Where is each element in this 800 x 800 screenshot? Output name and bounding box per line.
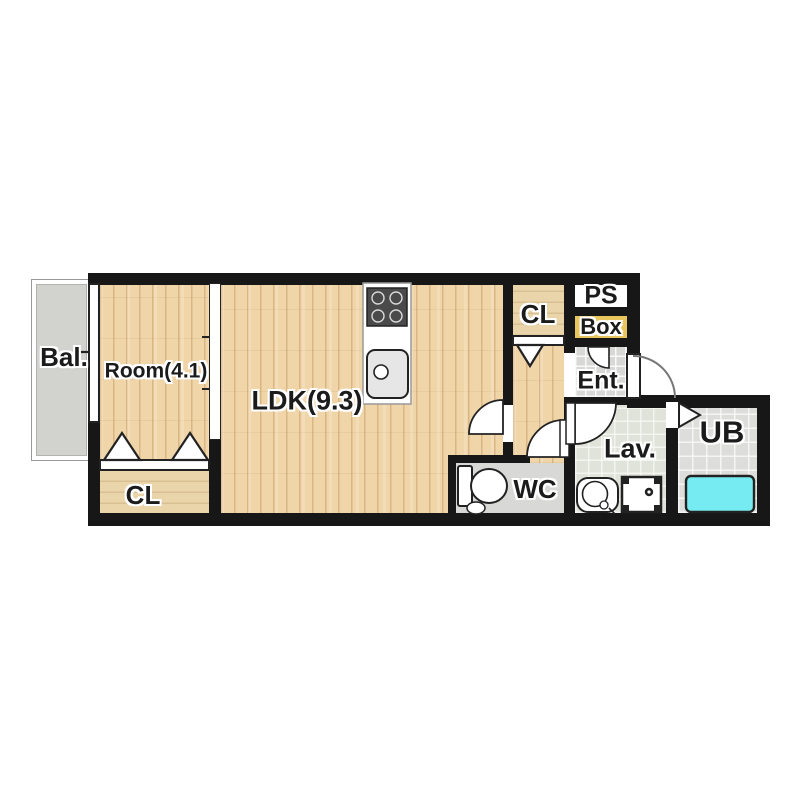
washing-machine-icon [622,477,661,512]
label-lavatory: Lav. [604,436,656,463]
fixtures-overlay [0,0,800,800]
door-leaf-lavatory [566,403,575,444]
label-wc: WC [513,476,556,502]
kitchen-sink-icon [367,350,408,398]
label-closet-bedroom: CL [126,482,161,508]
label-entrance: Ent. [577,369,624,394]
label-pipe-shaft: PS [584,284,617,309]
label-closet-hall: CL [521,301,556,327]
label-unit-bath: UB [700,417,745,448]
closet-folding-door-bedroom [100,433,209,470]
label-balcony: Bal. [40,344,88,370]
opening-hall-entrance [564,353,575,397]
front-door-leaf [627,354,640,398]
floor-plan: Bal. Room(4.1) LDK(9.3) CL CL PS Box Ent… [0,0,800,800]
stove-icon [367,288,407,326]
closet-folding-door-hall [513,336,564,366]
opening-unit-bath [666,402,678,428]
closet-door-triangle [104,433,140,460]
label-bedroom: Room(4.1) [105,361,208,382]
label-ldk: LDK(9.3) [251,388,362,415]
bathtub-icon [686,476,754,512]
closet-door-triangle [517,345,543,366]
label-shoe-box: Box [580,316,622,338]
door-swing-arc-ldk [469,400,503,434]
closet-door-triangle [172,433,208,460]
unit-bath-door-triangle [679,403,700,427]
washbasin-icon [577,478,618,514]
door-swing-arc-wc [527,420,564,457]
door-swing-arc-shoe-box [588,347,609,368]
toilet-icon [458,466,507,514]
